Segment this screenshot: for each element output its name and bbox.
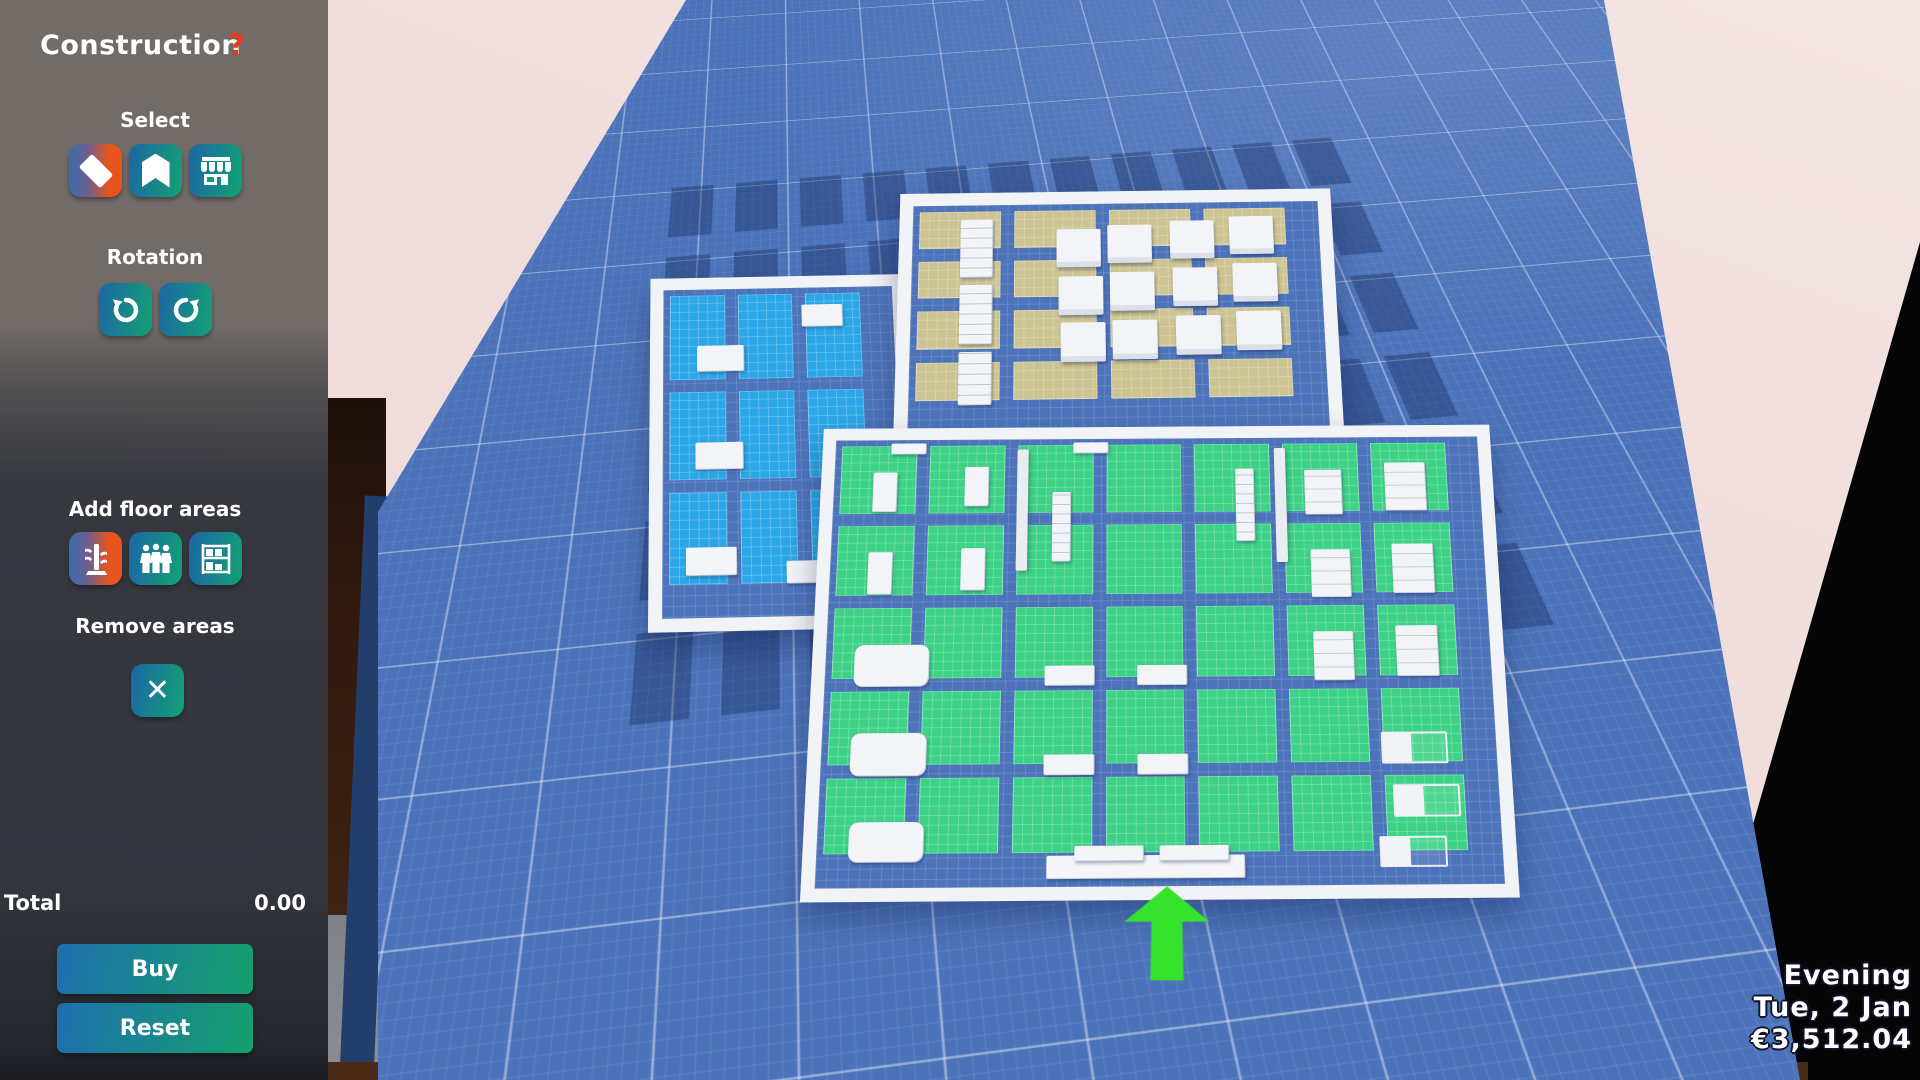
ctable-object <box>1112 320 1158 360</box>
ctable-object <box>1110 272 1155 311</box>
page-title: Construction <box>40 30 241 61</box>
close-icon: ✕ <box>145 673 170 708</box>
bin-object <box>853 645 930 687</box>
game-date: Tue, 2 Jan <box>1751 992 1912 1024</box>
shelf-object <box>1391 543 1435 593</box>
fridge-object <box>872 472 898 512</box>
rack-object <box>959 285 993 345</box>
remove-areas-button[interactable]: ✕ <box>131 664 184 717</box>
remove-areas-label: Remove areas <box>0 614 310 638</box>
shelving-icon <box>199 542 233 576</box>
add-floor-areas-label: Add floor areas <box>0 497 310 521</box>
ctable-object <box>1169 220 1214 258</box>
select-section-label: Select <box>0 108 310 132</box>
floor-area-patch <box>1013 360 1097 400</box>
floor-tool-button[interactable] <box>69 144 122 197</box>
rotate-cw-button[interactable] <box>159 283 212 336</box>
shelf-object <box>1304 470 1343 515</box>
floor-area-patch <box>1292 775 1374 851</box>
shelf-object <box>1384 462 1427 510</box>
floor-area-patch <box>1196 605 1275 677</box>
desk-object <box>686 547 737 576</box>
rotate-ccw-icon <box>110 294 142 326</box>
floor-area-patch <box>737 294 794 379</box>
cafeteria-room[interactable] <box>893 188 1345 449</box>
wire-object <box>1393 784 1462 817</box>
ctable-object <box>1236 310 1283 350</box>
ctable-object <box>1056 229 1100 268</box>
floor-area-patch <box>1111 359 1196 399</box>
total-label: Total <box>4 891 61 915</box>
table-object <box>1043 754 1094 775</box>
doorpanel-object <box>1074 845 1144 861</box>
floor-area-patch <box>920 691 1001 765</box>
reset-button[interactable]: Reset <box>57 1003 253 1053</box>
floor-area-patch <box>1106 444 1182 512</box>
doorpanel-object <box>1160 845 1230 861</box>
storefront-icon <box>199 155 233 187</box>
ctable-object <box>1232 263 1278 302</box>
ctable-object <box>1176 315 1222 355</box>
table-object <box>1137 665 1187 685</box>
floor-area-patch <box>1013 690 1092 764</box>
rotate-cw-icon <box>170 294 202 326</box>
coatrack-area-button[interactable] <box>69 532 122 585</box>
total-value: 0.00 <box>254 891 306 915</box>
bin-object <box>848 822 925 863</box>
storefront-tool-button[interactable] <box>189 144 242 197</box>
customers-area-button[interactable] <box>129 532 182 585</box>
walls-tool-button[interactable] <box>129 144 182 197</box>
desk-object <box>695 442 743 470</box>
status-hud: Evening Tue, 2 Jan €3,512.04 <box>1751 960 1912 1056</box>
floor-area-patch <box>923 607 1002 679</box>
fridge-object <box>964 467 989 507</box>
wire-object <box>1381 731 1449 763</box>
floor-area-patch <box>917 778 999 854</box>
rack-object <box>958 352 992 406</box>
floor-area-patch <box>1106 524 1183 594</box>
shelf-object <box>1395 625 1440 676</box>
floor-area-patch <box>1011 777 1092 853</box>
fridge-object <box>960 548 986 591</box>
floor-area-patch <box>1198 689 1278 763</box>
fridge-object <box>867 552 893 595</box>
construction-panel: Construction ? Select Rotation <box>0 0 328 1080</box>
floor-area-patch <box>1106 776 1186 852</box>
wire-object <box>1379 836 1448 867</box>
game-screen: Evening Tue, 2 Jan €3,512.04 Constructio… <box>0 0 1920 1080</box>
ctable-object <box>1059 276 1104 315</box>
floor-area-patch <box>1199 776 1280 852</box>
rotate-ccw-button[interactable] <box>99 283 152 336</box>
buy-button-label: Buy <box>132 957 179 982</box>
desk-object <box>801 304 843 327</box>
money: €3,512.04 <box>1751 1024 1912 1056</box>
ctable-object <box>1107 225 1152 264</box>
ctable-object <box>1061 322 1106 362</box>
floor-area-patch <box>1289 689 1370 763</box>
floor-area-patch <box>1208 358 1293 398</box>
tab-object <box>891 443 927 454</box>
coatrack-icon <box>79 541 113 577</box>
bin-object <box>849 733 927 777</box>
people-icon <box>138 542 174 576</box>
help-button[interactable]: ? <box>228 28 245 62</box>
diamond-icon <box>78 153 112 187</box>
sales-room[interactable] <box>800 425 1520 903</box>
table-object <box>1045 665 1095 685</box>
vshelf-object <box>1235 469 1255 542</box>
vshelf-object <box>1052 492 1071 562</box>
ctable-object <box>1228 216 1274 254</box>
buy-button[interactable]: Buy <box>57 944 253 994</box>
shelving-area-button[interactable] <box>189 532 242 585</box>
tab-object <box>1073 442 1108 453</box>
desk-object <box>697 345 744 372</box>
ctable-object <box>1172 267 1218 306</box>
floor-area-patch <box>739 390 797 479</box>
shelf-object <box>1313 631 1355 680</box>
floor-area-patch <box>1106 690 1185 764</box>
part-object <box>1016 450 1029 571</box>
home-icon <box>142 154 170 188</box>
table-object <box>1137 754 1188 775</box>
shelf-object <box>1310 549 1352 597</box>
reset-button-label: Reset <box>120 1016 190 1041</box>
rotation-section-label: Rotation <box>0 245 310 269</box>
time-of-day: Evening <box>1751 960 1912 992</box>
floor-area-patch <box>1194 444 1271 512</box>
floor-area-patch <box>1195 523 1273 593</box>
rack-object <box>960 219 994 277</box>
